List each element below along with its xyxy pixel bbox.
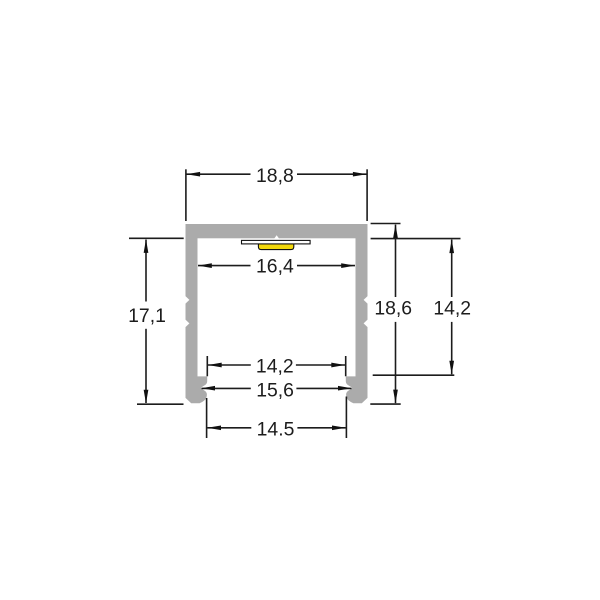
svg-text:18,6: 18,6: [374, 298, 412, 320]
svg-text:14.5: 14.5: [257, 418, 295, 440]
svg-text:14,2: 14,2: [256, 355, 294, 377]
svg-text:15,6: 15,6: [256, 379, 294, 401]
svg-text:16,4: 16,4: [256, 256, 294, 278]
svg-text:17,1: 17,1: [128, 305, 166, 327]
svg-text:18,8: 18,8: [256, 165, 294, 187]
svg-text:14,2: 14,2: [433, 298, 471, 320]
